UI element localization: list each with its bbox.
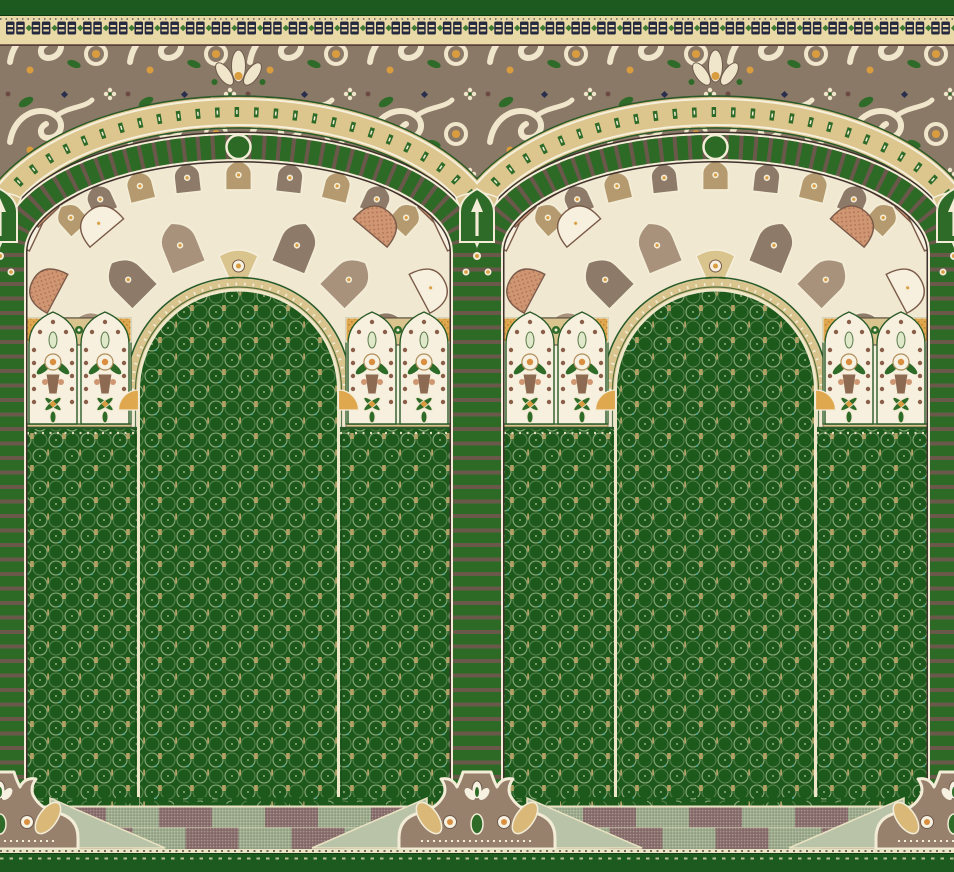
- ornament: [393, 25, 399, 27]
- ornament: [557, 25, 563, 27]
- ornament: [515, 330, 519, 334]
- ornament: [121, 30, 127, 32]
- ornament: [845, 332, 853, 348]
- ornament: [599, 387, 603, 391]
- ornament: [470, 25, 476, 27]
- ornament: [880, 374, 884, 378]
- ornament: [145, 22, 154, 35]
- prayer-rug-carpet: [0, 0, 954, 872]
- ornament: [874, 329, 877, 332]
- ornament: [789, 30, 795, 32]
- ornament: [403, 30, 409, 32]
- ornament: [444, 30, 450, 32]
- ornament: [249, 30, 255, 32]
- ornament: [70, 374, 74, 378]
- ornament: [583, 25, 589, 27]
- ornament: [737, 79, 743, 85]
- ornament: [480, 25, 486, 27]
- ornament: [599, 25, 605, 27]
- ornament: [917, 30, 923, 32]
- ornament: [95, 30, 101, 32]
- ornament: [710, 22, 719, 35]
- ornament: [547, 387, 551, 391]
- ornament: [701, 25, 707, 27]
- ornament: [422, 320, 426, 324]
- ornament: [366, 22, 375, 35]
- ornament: [367, 25, 373, 27]
- ornament: [392, 22, 401, 35]
- ornament: [342, 25, 348, 27]
- ornament: [389, 361, 393, 365]
- ornament: [509, 374, 513, 378]
- ornament: [85, 25, 91, 27]
- ornament: [547, 25, 553, 27]
- ornament: [136, 25, 142, 27]
- ornament: [918, 348, 922, 352]
- ornament: [299, 22, 308, 35]
- ornament: [578, 332, 586, 348]
- ornament: [342, 30, 348, 32]
- ornament: [496, 25, 502, 27]
- ornament: [43, 25, 49, 27]
- ornament: [547, 348, 551, 352]
- ornament: [847, 320, 851, 324]
- mihrab-niche: [616, 290, 816, 806]
- ornament: [103, 320, 107, 324]
- ornament: [0, 814, 6, 834]
- ornament: [69, 25, 75, 27]
- ornament: [455, 25, 461, 27]
- ornament: [828, 348, 832, 352]
- ornament: [860, 330, 864, 334]
- ornament: [557, 30, 563, 32]
- ornament: [369, 359, 375, 365]
- ornament: [367, 30, 373, 32]
- ornament: [753, 30, 759, 32]
- ornament: [275, 25, 281, 27]
- ornament: [187, 25, 193, 27]
- ornament: [906, 22, 915, 35]
- ornament: [684, 22, 693, 35]
- ornament: [443, 22, 452, 35]
- ornament: [50, 359, 56, 365]
- ornament: [567, 330, 571, 334]
- ornament: [249, 25, 255, 27]
- ornament: [846, 411, 852, 423]
- bottom-border: [0, 849, 954, 872]
- ornament: [18, 30, 24, 32]
- ornament: [403, 361, 407, 365]
- ornament: [763, 25, 769, 27]
- ornament: [403, 400, 407, 404]
- ornament: [579, 359, 585, 365]
- ornament: [370, 320, 374, 324]
- ornament: [880, 387, 884, 391]
- ornament: [856, 30, 862, 32]
- ornament: [222, 22, 231, 35]
- ornament: [0, 212, 2, 236]
- ornament: [924, 819, 930, 825]
- ornament: [866, 30, 872, 32]
- ornament: [830, 30, 836, 32]
- ornament: [532, 25, 538, 27]
- ornament: [46, 374, 60, 394]
- ornament: [316, 30, 322, 32]
- ornament: [475, 212, 478, 236]
- ornament: [389, 348, 393, 352]
- ornament: [546, 22, 555, 35]
- ornament: [880, 22, 889, 35]
- ornament: [8, 30, 14, 32]
- ornament: [555, 329, 558, 332]
- ornament: [403, 387, 407, 391]
- ornament: [376, 22, 385, 35]
- ornament: [421, 411, 427, 423]
- ornament: [933, 25, 939, 27]
- ornament: [700, 22, 709, 35]
- mihrab-niche: [139, 290, 339, 806]
- ornament: [676, 30, 682, 32]
- ornament: [830, 25, 836, 27]
- ornament: [635, 30, 641, 32]
- ornament: [186, 22, 195, 35]
- ornament: [469, 22, 478, 35]
- ornament: [509, 361, 513, 365]
- ornament: [854, 22, 863, 35]
- ornament: [351, 361, 355, 365]
- ornament: [941, 22, 950, 35]
- ornament: [136, 30, 142, 32]
- ornament: [368, 332, 376, 348]
- ornament: [881, 30, 887, 32]
- ornament: [547, 400, 551, 404]
- ornament: [351, 348, 355, 352]
- ornament: [352, 25, 358, 27]
- ornament: [361, 379, 367, 385]
- ornament: [325, 22, 334, 35]
- ornament: [42, 22, 51, 35]
- ornament: [237, 173, 240, 176]
- ornament: [265, 25, 271, 27]
- ornament: [109, 22, 118, 35]
- ornament: [419, 25, 425, 27]
- ornament: [32, 400, 36, 404]
- ornament: [659, 22, 668, 35]
- ornament: [762, 22, 771, 35]
- ornament: [84, 374, 88, 378]
- ornament: [834, 330, 838, 334]
- keystone-scale: [704, 135, 728, 159]
- ornament: [235, 72, 243, 80]
- ornament: [389, 374, 393, 378]
- ornament: [119, 22, 128, 35]
- ornament: [828, 374, 832, 378]
- ornament: [838, 379, 844, 385]
- ornament: [676, 25, 682, 27]
- ornament: [70, 387, 74, 391]
- ornament: [273, 22, 282, 35]
- ornament: [587, 379, 593, 385]
- ornament: [599, 348, 603, 352]
- ornament: [198, 30, 204, 32]
- ornament: [172, 30, 178, 32]
- ornament: [84, 348, 88, 352]
- ornament: [880, 400, 884, 404]
- ornament: [464, 270, 468, 274]
- ornament: [686, 30, 692, 32]
- ornament: [527, 411, 533, 423]
- ornament: [736, 22, 745, 35]
- ornament: [814, 30, 820, 32]
- ornament: [237, 22, 246, 35]
- ornament: [789, 25, 795, 27]
- ornament: [712, 72, 720, 80]
- ornament: [122, 387, 126, 391]
- ornament: [101, 332, 109, 348]
- ornament: [470, 30, 476, 32]
- ornament: [263, 22, 272, 35]
- ornament: [403, 25, 409, 27]
- ornament: [494, 22, 503, 35]
- ornament: [609, 25, 615, 27]
- ornament: [689, 79, 695, 85]
- ornament: [650, 25, 656, 27]
- ornament: [378, 30, 384, 32]
- ornament: [814, 25, 820, 27]
- ornament: [441, 400, 445, 404]
- ornament: [42, 379, 48, 385]
- ornament: [547, 361, 551, 365]
- ornament: [403, 374, 407, 378]
- ornament: [69, 30, 75, 32]
- ornament: [897, 332, 905, 348]
- ornament: [50, 411, 56, 423]
- ornament: [16, 22, 25, 35]
- ornament: [804, 30, 810, 32]
- ornament: [712, 25, 718, 27]
- ornament: [575, 374, 589, 394]
- ornament: [866, 387, 870, 391]
- ornament: [828, 22, 837, 35]
- ornament: [70, 361, 74, 365]
- ornament: [561, 400, 565, 404]
- ornament: [866, 400, 870, 404]
- ornament: [135, 22, 144, 35]
- ornament: [886, 330, 890, 334]
- ornament: [526, 332, 534, 348]
- ornament: [906, 379, 912, 385]
- ornament: [573, 25, 579, 27]
- ornament: [547, 374, 551, 378]
- ornament: [389, 387, 393, 391]
- ornament: [624, 30, 630, 32]
- ornament: [532, 30, 538, 32]
- prayer-rug-image: [0, 0, 954, 872]
- ornament: [93, 22, 102, 35]
- keystone-scale: [227, 135, 251, 159]
- ornament: [172, 25, 178, 27]
- bottom-strip: [0, 853, 954, 872]
- ornament: [350, 22, 359, 35]
- ornament: [561, 374, 565, 378]
- ornament: [160, 22, 169, 35]
- ornament: [916, 22, 925, 35]
- ornament: [290, 25, 296, 27]
- ornament: [918, 400, 922, 404]
- ornament: [522, 25, 528, 27]
- top-strip: [0, 0, 954, 16]
- ornament: [839, 22, 848, 35]
- ornament: [943, 30, 949, 32]
- ornament: [635, 25, 641, 27]
- ornament: [714, 173, 717, 176]
- ornament: [32, 374, 36, 378]
- ornament: [441, 361, 445, 365]
- ornament: [912, 330, 916, 334]
- ornament: [9, 270, 13, 274]
- ornament: [779, 25, 785, 27]
- ornament: [212, 79, 218, 85]
- ornament: [737, 25, 743, 27]
- ornament: [435, 330, 439, 334]
- ornament: [98, 374, 112, 394]
- ornament: [582, 22, 591, 35]
- ornament: [779, 30, 785, 32]
- ornament: [509, 348, 513, 352]
- ornament: [813, 22, 822, 35]
- ornament: [419, 30, 425, 32]
- ornament: [571, 22, 580, 35]
- ornament: [32, 387, 36, 391]
- ornament: [579, 411, 585, 423]
- ornament: [918, 387, 922, 391]
- ornament: [314, 22, 323, 35]
- ornament: [122, 361, 126, 365]
- ornament: [599, 30, 605, 32]
- ornament: [290, 30, 296, 32]
- ornament: [496, 30, 502, 32]
- ornament: [196, 22, 205, 35]
- ornament: [417, 374, 431, 394]
- ornament: [623, 22, 632, 35]
- ornament: [917, 25, 923, 27]
- ornament: [726, 22, 735, 35]
- ornament: [444, 25, 450, 27]
- ornament: [894, 374, 908, 394]
- ornament: [289, 22, 298, 35]
- ornament: [890, 379, 896, 385]
- ornament: [413, 379, 419, 385]
- ornament: [70, 348, 74, 352]
- ornament: [881, 25, 887, 27]
- ornament: [441, 374, 445, 378]
- ornament: [866, 361, 870, 365]
- ornament: [393, 30, 399, 32]
- ornament: [417, 22, 426, 35]
- ornament: [593, 330, 597, 334]
- ornament: [122, 374, 126, 378]
- ornament: [429, 25, 435, 27]
- ornament: [429, 30, 435, 32]
- ornament: [223, 25, 229, 27]
- ornament: [479, 22, 488, 35]
- ornament: [842, 374, 856, 394]
- ornament: [90, 330, 94, 334]
- ornament: [475, 254, 479, 258]
- ornament: [866, 374, 870, 378]
- ornament: [70, 400, 74, 404]
- ornament: [102, 411, 108, 423]
- ornament: [378, 25, 384, 27]
- ornament: [854, 379, 860, 385]
- ornament: [213, 30, 219, 32]
- ornament: [239, 30, 245, 32]
- ornament: [383, 330, 387, 334]
- ornament: [110, 30, 116, 32]
- ornament: [840, 30, 846, 32]
- ornament: [597, 22, 606, 35]
- ornament: [650, 30, 656, 32]
- ornament: [505, 22, 514, 35]
- ornament: [892, 25, 898, 27]
- ornament: [162, 30, 168, 32]
- ornament: [64, 330, 68, 334]
- ornament: [83, 22, 92, 35]
- ornament: [527, 359, 533, 365]
- ornament: [561, 387, 565, 391]
- ornament: [59, 30, 65, 32]
- ornament: [59, 25, 65, 27]
- ornament: [84, 361, 88, 365]
- ornament: [441, 387, 445, 391]
- ornament: [357, 330, 361, 334]
- ornament: [561, 348, 565, 352]
- ornament: [522, 30, 528, 32]
- ornament: [701, 30, 707, 32]
- ornament: [146, 25, 152, 27]
- ornament: [866, 25, 872, 27]
- ornament: [110, 25, 116, 27]
- ornament: [727, 25, 733, 27]
- ornament: [420, 332, 428, 348]
- ornament: [223, 30, 229, 32]
- ornament: [397, 329, 400, 332]
- ornament: [624, 25, 630, 27]
- ornament: [828, 361, 832, 365]
- ornament: [275, 30, 281, 32]
- ornament: [712, 30, 718, 32]
- ornament: [933, 30, 939, 32]
- ornament: [561, 361, 565, 365]
- ornament: [110, 379, 116, 385]
- ornament: [856, 25, 862, 27]
- ornament: [571, 379, 577, 385]
- ornament: [85, 30, 91, 32]
- ornament: [58, 379, 64, 385]
- ornament: [480, 30, 486, 32]
- ornament: [599, 361, 603, 365]
- ornament: [547, 30, 553, 32]
- ornament: [78, 329, 81, 332]
- ornament: [898, 411, 904, 423]
- ornament: [389, 400, 393, 404]
- ornament: [486, 270, 490, 274]
- ornament: [918, 374, 922, 378]
- ornament: [880, 348, 884, 352]
- ornament: [265, 30, 271, 32]
- ornament: [427, 22, 436, 35]
- ornament: [102, 359, 108, 365]
